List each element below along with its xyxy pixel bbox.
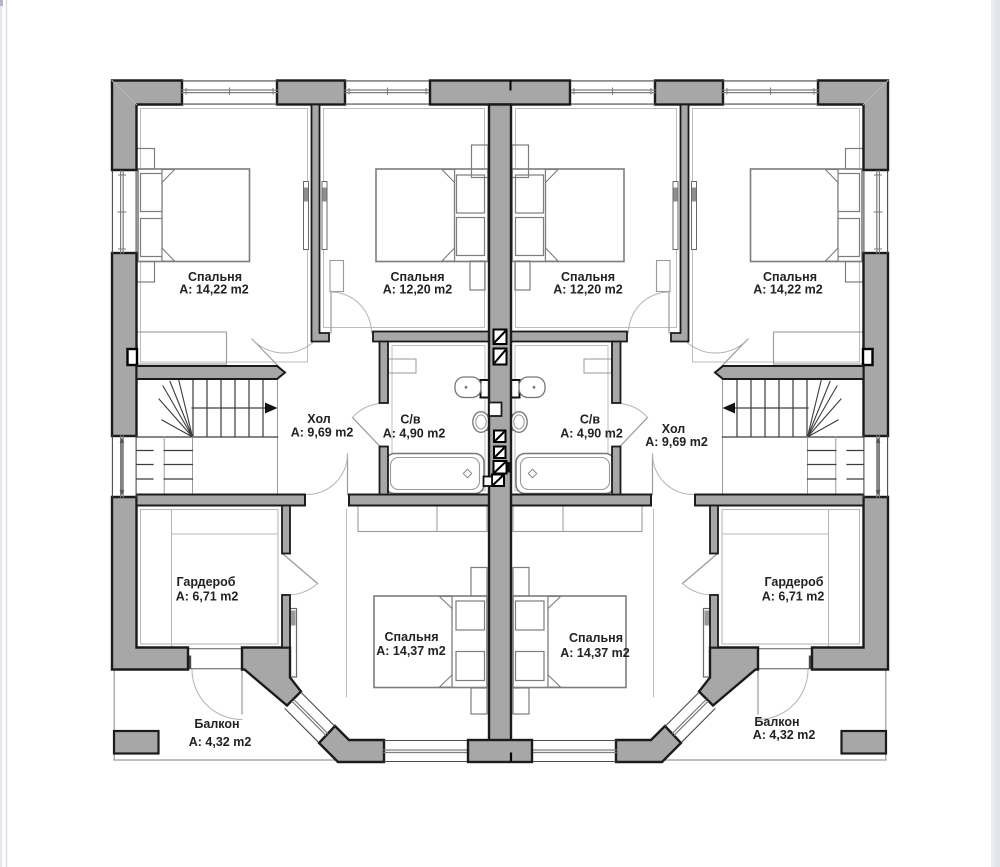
svg-text:Хол: Хол bbox=[662, 422, 685, 436]
svg-text:A: 4,32 m2: A: 4,32 m2 bbox=[189, 735, 252, 749]
svg-text:A: 14,22 m2: A: 14,22 m2 bbox=[179, 283, 249, 297]
svg-text:A: 9,69 m2: A: 9,69 m2 bbox=[645, 435, 708, 449]
svg-text:С/в: С/в bbox=[400, 413, 421, 427]
svg-text:Балкон: Балкон bbox=[754, 715, 799, 729]
svg-text:Хол: Хол bbox=[307, 412, 330, 426]
svg-text:A: 4,32 m2: A: 4,32 m2 bbox=[753, 728, 816, 742]
svg-text:A: 14,22 m2: A: 14,22 m2 bbox=[753, 283, 823, 297]
svg-text:A: 12,20 m2: A: 12,20 m2 bbox=[553, 283, 623, 297]
svg-text:A: 9,69 m2: A: 9,69 m2 bbox=[291, 426, 354, 440]
svg-text:A: 4,90 m2: A: 4,90 m2 bbox=[560, 427, 623, 441]
svg-text:A: 14,37 m2: A: 14,37 m2 bbox=[376, 644, 446, 658]
svg-text:A: 4,90 m2: A: 4,90 m2 bbox=[383, 427, 446, 441]
svg-text:Гардероб: Гардероб bbox=[176, 575, 235, 589]
svg-text:С/в: С/в bbox=[580, 413, 601, 427]
svg-text:A: 6,71 m2: A: 6,71 m2 bbox=[762, 590, 825, 604]
svg-text:A: 14,37 m2: A: 14,37 m2 bbox=[560, 646, 630, 660]
svg-text:A: 6,71 m2: A: 6,71 m2 bbox=[176, 590, 239, 604]
svg-text:Балкон: Балкон bbox=[194, 717, 239, 731]
svg-text:Спальня: Спальня bbox=[385, 630, 439, 644]
svg-text:Гардероб: Гардероб bbox=[764, 575, 823, 589]
svg-text:Спальня: Спальня bbox=[569, 631, 623, 645]
svg-text:A: 12,20 m2: A: 12,20 m2 bbox=[383, 283, 453, 297]
